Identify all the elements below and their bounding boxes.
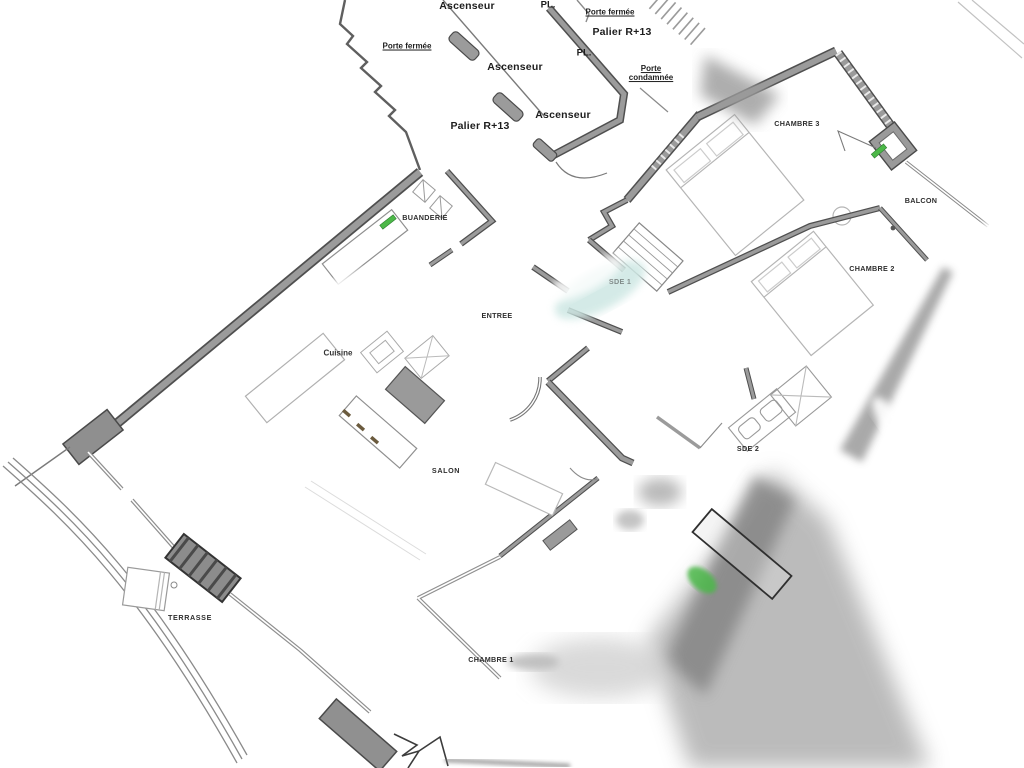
label-porte-fermee-left: Porte fermée: [383, 43, 432, 52]
label-cuisine: Cuisine: [324, 350, 353, 359]
entrance-door-swing: [556, 162, 607, 178]
stairs-icon: [656, 0, 702, 40]
label-sde1: SDE 1: [609, 278, 631, 286]
elevator-icon: [447, 30, 480, 62]
chambre3-furniture: [666, 115, 851, 256]
label-sde2: SDE 2: [737, 445, 759, 453]
vanity-icon: [728, 389, 795, 451]
label-ascenseur-mid: Ascenseur: [487, 62, 543, 74]
salon-walls: [305, 348, 633, 560]
counter-icon: [245, 333, 344, 422]
label-buanderie: BUANDERIE: [402, 214, 447, 222]
planter-icon: [165, 534, 240, 602]
elevator-icon: [491, 91, 524, 123]
label-salon: SALON: [432, 467, 460, 475]
label-terrasse: TERRASSE: [168, 614, 212, 622]
label-chambre2: CHAMBRE 2: [849, 265, 894, 273]
chambre2-furniture: [751, 231, 873, 355]
label-porte-condamnee: Porte condamnée: [626, 65, 676, 83]
label-entree: ENTREE: [482, 312, 513, 320]
label-pl-top: PL.: [541, 1, 556, 12]
elevator-doors: [447, 30, 558, 162]
sde2-fixtures: [728, 366, 831, 451]
sink-icon: [361, 331, 404, 373]
label-palier-right: Palier R+13: [592, 27, 651, 39]
smudge-overlays: [291, 55, 953, 768]
floor-plan: Ascenseur PL. Porte fermée Palier R+13 P…: [0, 0, 1024, 768]
label-pl-mid: PL.: [577, 49, 592, 60]
label-chambre3: CHAMBRE 3: [774, 120, 819, 128]
label-palier-left: Palier R+13: [450, 121, 509, 133]
pen-scribble: [394, 734, 448, 768]
label-chambre1: CHAMBRE 1: [468, 656, 513, 664]
floor-plan-drawing: [0, 0, 1024, 768]
label-porte-fermee-right: Porte fermée: [586, 9, 635, 18]
terrace-furniture: [123, 567, 177, 610]
elevator-icon: [532, 138, 558, 163]
label-ascenseur-bottom: Ascenseur: [535, 110, 591, 122]
terrace-railing: [3, 458, 247, 763]
bed-icon: [751, 231, 873, 355]
sofa-icon: [485, 462, 562, 515]
label-balcon: BALCON: [905, 197, 938, 205]
label-ascenseur-top: Ascenseur: [439, 1, 495, 13]
